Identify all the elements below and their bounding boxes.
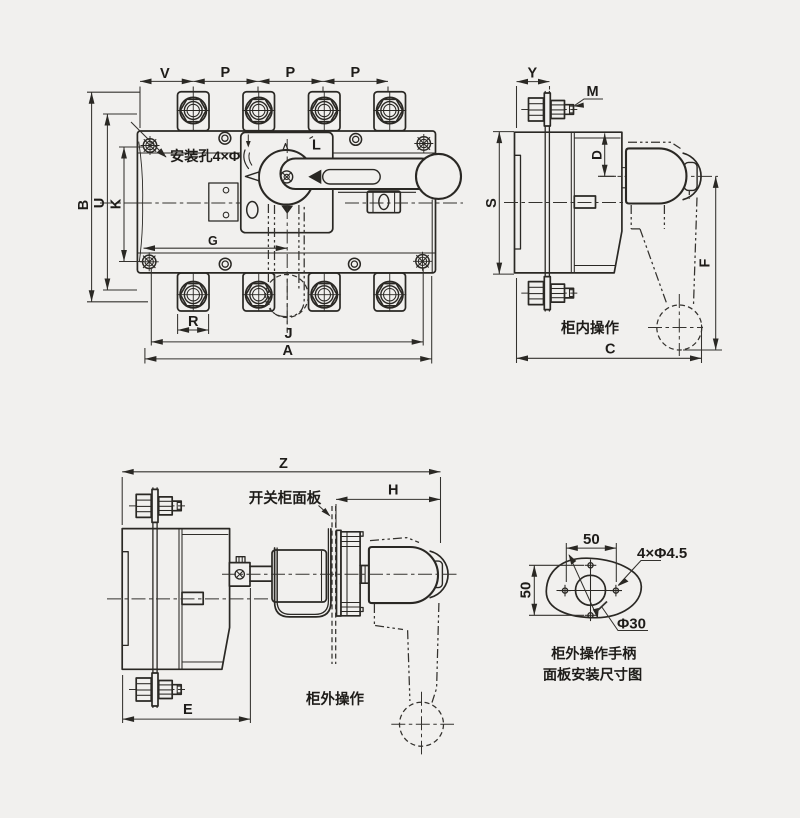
svg-text:50: 50 (583, 531, 600, 548)
svg-text:面板安装尺寸图: 面板安装尺寸图 (543, 667, 642, 684)
svg-text:M: M (587, 84, 599, 100)
svg-text:E: E (183, 702, 193, 718)
svg-text:F: F (698, 258, 714, 267)
svg-text:V: V (160, 66, 170, 82)
svg-text:P: P (351, 65, 361, 81)
svg-text:Z: Z (279, 456, 288, 472)
svg-text:U: U (92, 198, 108, 208)
svg-text:H: H (388, 483, 398, 499)
svg-text:柜外操作: 柜外操作 (306, 690, 364, 708)
svg-text:B: B (76, 200, 92, 210)
svg-text:Y: Y (528, 66, 538, 82)
svg-text:50: 50 (518, 582, 535, 599)
svg-text:柜内操作: 柜内操作 (561, 319, 619, 337)
svg-text:P: P (221, 65, 231, 81)
svg-text:R: R (188, 314, 199, 330)
svg-text:C: C (605, 342, 616, 358)
svg-text:K: K (109, 198, 125, 209)
svg-text:A: A (283, 343, 294, 359)
svg-text:J: J (285, 326, 293, 342)
svg-text:Φ30: Φ30 (617, 616, 646, 633)
svg-text:L: L (312, 138, 321, 154)
svg-text:D: D (590, 150, 605, 160)
svg-text:4×Φ4.5: 4×Φ4.5 (637, 545, 687, 562)
svg-text:G: G (208, 234, 218, 248)
svg-text:安装孔4×Φ: 安装孔4×Φ (170, 148, 241, 165)
svg-text:开关柜面板: 开关柜面板 (249, 489, 322, 507)
svg-text:柜外操作手柄: 柜外操作手柄 (551, 646, 636, 663)
svg-text:S: S (484, 198, 500, 208)
svg-text:P: P (286, 65, 296, 81)
